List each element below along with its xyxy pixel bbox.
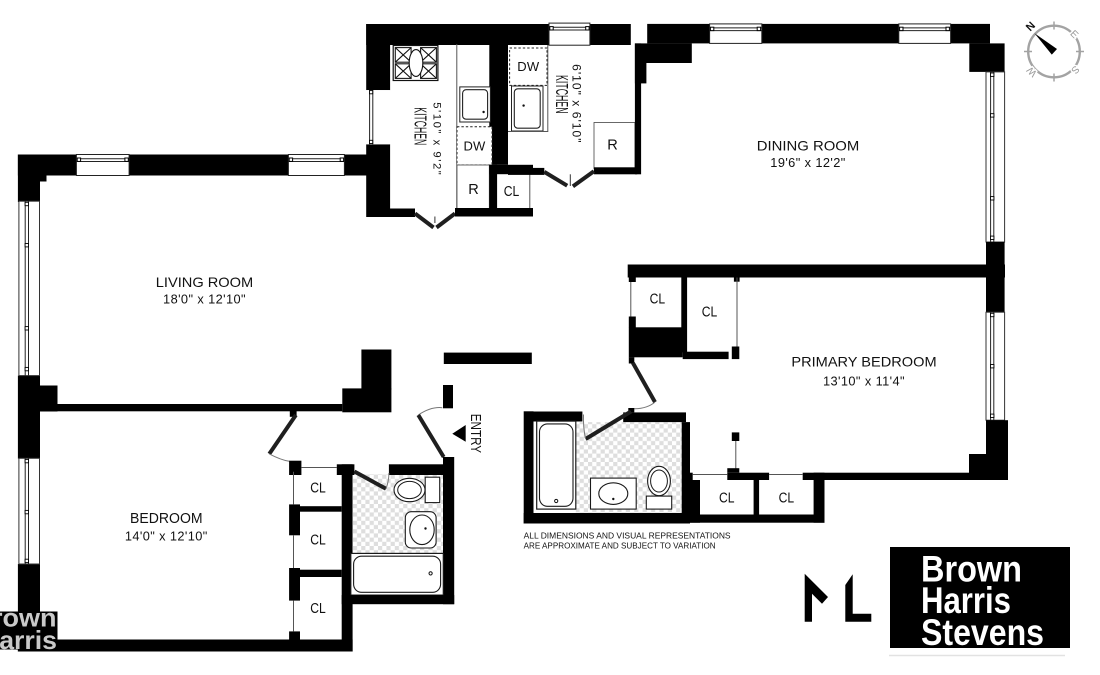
- svg-text:CL: CL: [310, 480, 326, 496]
- svg-text:CL: CL: [310, 601, 326, 617]
- svg-text:DW: DW: [517, 59, 540, 74]
- svg-text:19'6" x 12'2": 19'6" x 12'2": [770, 155, 845, 170]
- svg-text:CL: CL: [504, 184, 520, 200]
- svg-text:CL: CL: [702, 305, 718, 321]
- svg-text:LIVING ROOM: LIVING ROOM: [156, 274, 254, 290]
- svg-text:CL: CL: [310, 532, 326, 548]
- svg-text:14'0" x 12'10": 14'0" x 12'10": [125, 529, 208, 544]
- svg-text:Stevens: Stevens: [921, 611, 1044, 653]
- svg-text:18'0" x 12'10": 18'0" x 12'10": [163, 292, 246, 307]
- svg-text:ARE APPROXIMATE AND SUBJECT TO: ARE APPROXIMATE AND SUBJECT TO VARIATION: [524, 541, 716, 551]
- svg-text:CL: CL: [719, 491, 735, 507]
- svg-text:R: R: [468, 182, 479, 198]
- svg-text:PRIMARY BEDROOM: PRIMARY BEDROOM: [791, 354, 936, 370]
- svg-text:KITCHEN: KITCHEN: [552, 75, 572, 114]
- svg-text:ALL DIMENSIONS AND VISUAL REPR: ALL DIMENSIONS AND VISUAL REPRESENTATION…: [524, 531, 731, 541]
- svg-text:CL: CL: [650, 292, 666, 308]
- svg-text:6'10" x 6'10": 6'10" x 6'10": [569, 64, 583, 142]
- svg-text:KITCHEN: KITCHEN: [410, 107, 430, 145]
- svg-text:BEDROOM: BEDROOM: [130, 510, 203, 527]
- svg-text:R: R: [607, 138, 618, 154]
- svg-text:Harris: Harris: [0, 625, 57, 655]
- svg-text:DW: DW: [463, 139, 486, 154]
- svg-text:13'10" x 11'4": 13'10" x 11'4": [823, 374, 905, 389]
- svg-text:DINING ROOM: DINING ROOM: [757, 138, 860, 154]
- svg-text:CL: CL: [779, 491, 795, 507]
- svg-text:ENTRY: ENTRY: [467, 414, 484, 453]
